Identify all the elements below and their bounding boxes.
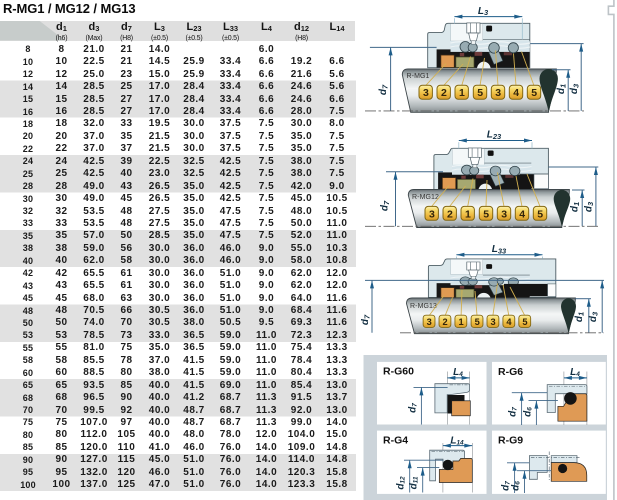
- svg-text:R-G9: R-G9: [498, 435, 523, 447]
- svg-text:3: 3: [501, 208, 507, 220]
- svg-text:5: 5: [537, 208, 543, 220]
- svg-text:R-G60: R-G60: [383, 366, 414, 378]
- svg-text:4: 4: [519, 208, 525, 220]
- svg-text:L33: L33: [492, 244, 507, 255]
- svg-text:R-MG13: R-MG13: [410, 303, 437, 310]
- svg-text:L3: L3: [478, 6, 489, 17]
- svg-text:3: 3: [491, 317, 496, 327]
- svg-text:R-MG1: R-MG1: [407, 73, 430, 80]
- svg-text:4: 4: [506, 317, 512, 327]
- svg-text:L23: L23: [487, 130, 502, 141]
- svg-text:d7: d7: [361, 314, 371, 325]
- svg-text:5: 5: [483, 208, 489, 220]
- svg-text:1: 1: [458, 317, 463, 327]
- svg-text:d1: d1: [556, 84, 567, 94]
- svg-text:d7: d7: [378, 84, 389, 95]
- svg-text:3: 3: [423, 87, 429, 99]
- svg-text:2: 2: [443, 317, 448, 327]
- svg-text:d3: d3: [584, 201, 595, 212]
- svg-text:5: 5: [475, 317, 480, 327]
- svg-text:2: 2: [447, 208, 453, 220]
- svg-text:5: 5: [522, 317, 527, 327]
- svg-text:2: 2: [441, 87, 447, 99]
- svg-text:d3: d3: [569, 83, 580, 94]
- svg-text:1: 1: [459, 87, 465, 99]
- svg-text:d1: d1: [574, 312, 585, 322]
- svg-text:R-G4: R-G4: [383, 435, 408, 447]
- svg-text:R-MG12: R-MG12: [412, 194, 439, 201]
- svg-text:5: 5: [477, 87, 483, 99]
- svg-text:1: 1: [465, 208, 471, 220]
- svg-text:5: 5: [531, 87, 537, 99]
- svg-text:3: 3: [495, 87, 501, 99]
- svg-text:d3: d3: [588, 311, 599, 322]
- svg-text:d1: d1: [570, 202, 581, 212]
- svg-text:R-G6: R-G6: [498, 366, 523, 378]
- svg-text:4: 4: [513, 87, 519, 99]
- svg-text:3: 3: [427, 317, 432, 327]
- svg-text:d7: d7: [380, 200, 391, 211]
- svg-text:3: 3: [429, 208, 435, 220]
